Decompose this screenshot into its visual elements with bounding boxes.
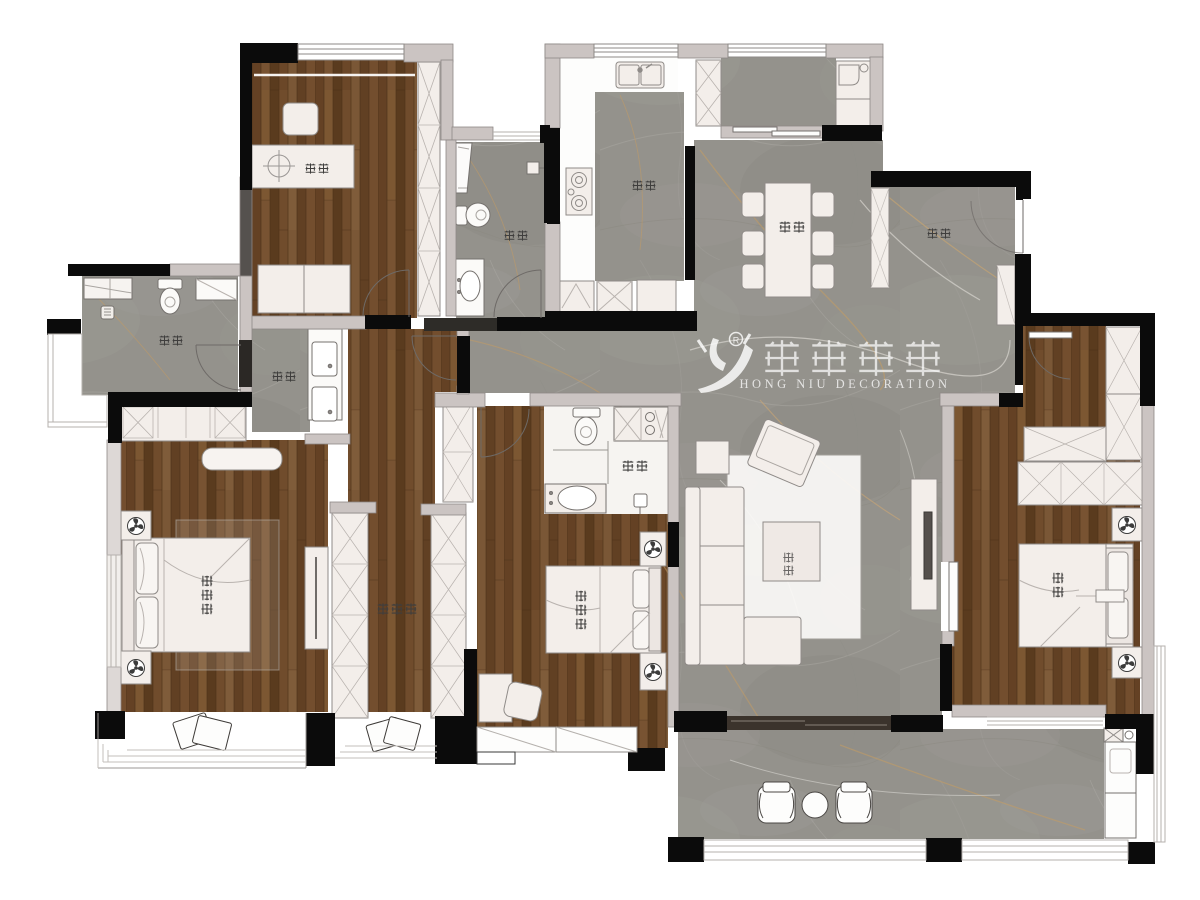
svg-text:HONG NIU DECORATION: HONG NIU DECORATION xyxy=(740,377,951,391)
svg-text:R: R xyxy=(733,336,740,346)
